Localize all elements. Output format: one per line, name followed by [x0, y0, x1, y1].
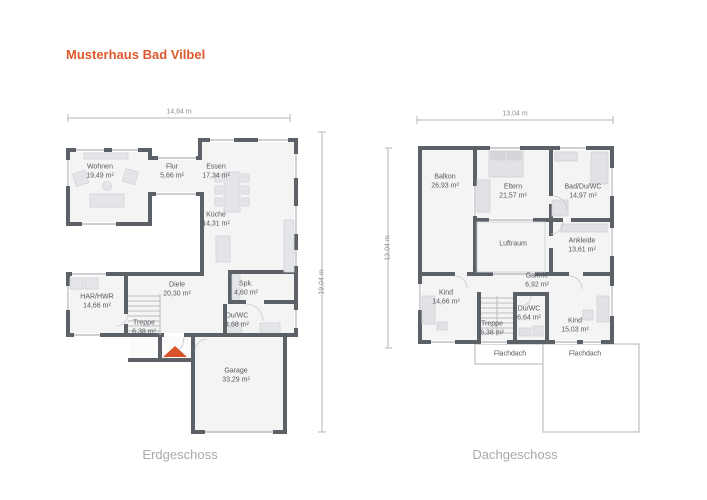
- page-title: Musterhaus Bad Vilbel: [66, 47, 205, 62]
- room-label-galerie: Galerie6,92 m²: [525, 272, 549, 291]
- caption-erdgeschoss: Erdgeschoss: [60, 447, 300, 462]
- room-label-bad-du-wc: Bad/Du/WC14,97 m²: [565, 183, 602, 202]
- floor-plan-erdgeschoss: 14,84 m 19,04 m Wohnen19,49 m² Flur5,66 …: [60, 108, 340, 453]
- dim-height-eg: 19,04 m: [319, 269, 326, 294]
- room-label-essen: Essen17,34 m²: [202, 163, 230, 182]
- erdgeschoss-drawing: [60, 108, 340, 453]
- dim-height-dg: 13,04 m: [385, 235, 392, 260]
- room-label-luftraum: Luftraum: [499, 239, 527, 248]
- room-label-kind-rechts: Kind15,03 m²: [561, 317, 589, 336]
- dim-width-eg: 14,84 m: [166, 109, 191, 116]
- room-label-ankleide: Ankleide13,61 m²: [568, 237, 596, 256]
- room-label-eltern: Eltern21,57 m²: [499, 183, 527, 202]
- room-label-flachdach-links: Flachdach: [494, 349, 526, 358]
- room-label-treppe-eg: Treppe6,38 m²: [132, 319, 156, 338]
- room-label-kind-links: Kind14,66 m²: [432, 289, 460, 308]
- room-label-kueche: Küche14,31 m²: [202, 211, 230, 230]
- floorplan-page: Musterhaus Bad Vilbel: [0, 0, 707, 500]
- dim-width-dg: 13,04 m: [502, 111, 527, 118]
- room-label-flachdach-rechts: Flachdach: [569, 349, 601, 358]
- floor-plan-dachgeschoss: 13,04 m 13,04 m Balkon26,93 m² Eltern21,…: [385, 108, 665, 453]
- room-label-garage: Garage33,29 m²: [222, 367, 250, 386]
- room-label-diele: Diele20,30 m²: [163, 281, 191, 300]
- caption-dachgeschoss: Dachgeschoss: [385, 447, 645, 462]
- room-label-treppe-dg: Treppe6,38 m²: [480, 320, 504, 339]
- room-label-wohnen: Wohnen19,49 m²: [86, 163, 114, 182]
- room-label-duwc-eg: Du/WC4,68 m²: [225, 312, 249, 331]
- room-label-balkon: Balkon26,93 m²: [431, 173, 459, 192]
- room-label-har-hwr: HAR/HWR14,66 m²: [80, 293, 113, 312]
- room-label-duwc-dg: Du/WC6,64 m²: [517, 305, 541, 324]
- room-label-flur: Flur5,66 m²: [160, 163, 184, 182]
- room-label-spk: Spk.4,60 m²: [234, 280, 258, 299]
